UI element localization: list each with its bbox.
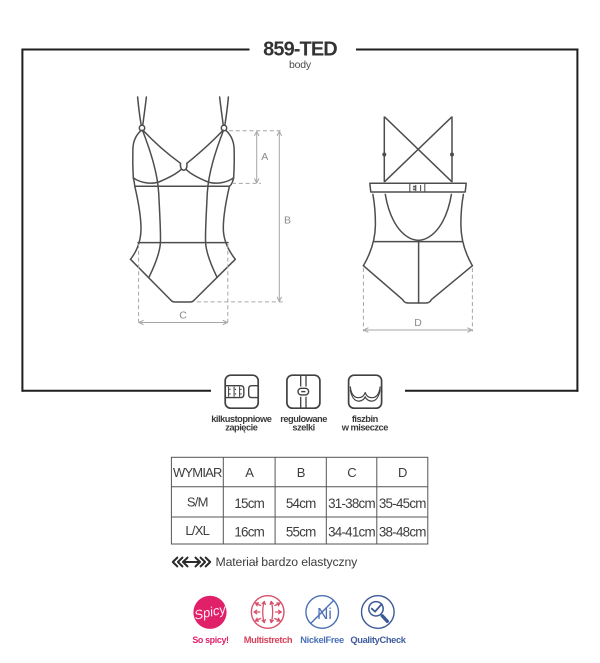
svg-text:body: body <box>289 59 312 71</box>
svg-text:A: A <box>261 151 268 163</box>
svg-text:C: C <box>347 465 356 480</box>
svg-text:NickelFree: NickelFree <box>300 635 344 645</box>
svg-text:16cm: 16cm <box>234 525 264 540</box>
svg-text:B: B <box>284 214 291 226</box>
svg-text:54cm: 54cm <box>286 496 316 511</box>
svg-text:w miseczce: w miseczce <box>341 423 388 433</box>
svg-text:C: C <box>179 310 187 322</box>
svg-text:859-TED: 859-TED <box>263 39 337 61</box>
svg-text:55cm: 55cm <box>286 525 316 540</box>
svg-text:zapięcie: zapięcie <box>225 423 258 433</box>
svg-text:15cm: 15cm <box>234 496 264 511</box>
svg-text:D: D <box>398 465 407 480</box>
svg-text:A: A <box>245 465 254 480</box>
svg-text:L/XL: L/XL <box>185 523 209 538</box>
svg-text:So spicy!: So spicy! <box>192 635 229 645</box>
svg-text:D: D <box>414 317 422 329</box>
svg-text:Multistretch: Multistretch <box>244 635 293 645</box>
svg-text:B: B <box>297 465 305 480</box>
svg-text:Materiał bardzo elastyczny: Materiał bardzo elastyczny <box>216 555 359 569</box>
svg-text:S/M: S/M <box>187 495 208 510</box>
svg-text:34-41cm: 34-41cm <box>328 525 375 540</box>
svg-text:35-45cm: 35-45cm <box>379 496 426 511</box>
svg-text:WYMIAR: WYMIAR <box>173 465 222 480</box>
svg-text:31-38cm: 31-38cm <box>328 496 375 511</box>
svg-text:38-48cm: 38-48cm <box>379 525 426 540</box>
svg-text:QualityCheck: QualityCheck <box>350 635 406 645</box>
svg-text:szelki: szelki <box>292 423 314 433</box>
